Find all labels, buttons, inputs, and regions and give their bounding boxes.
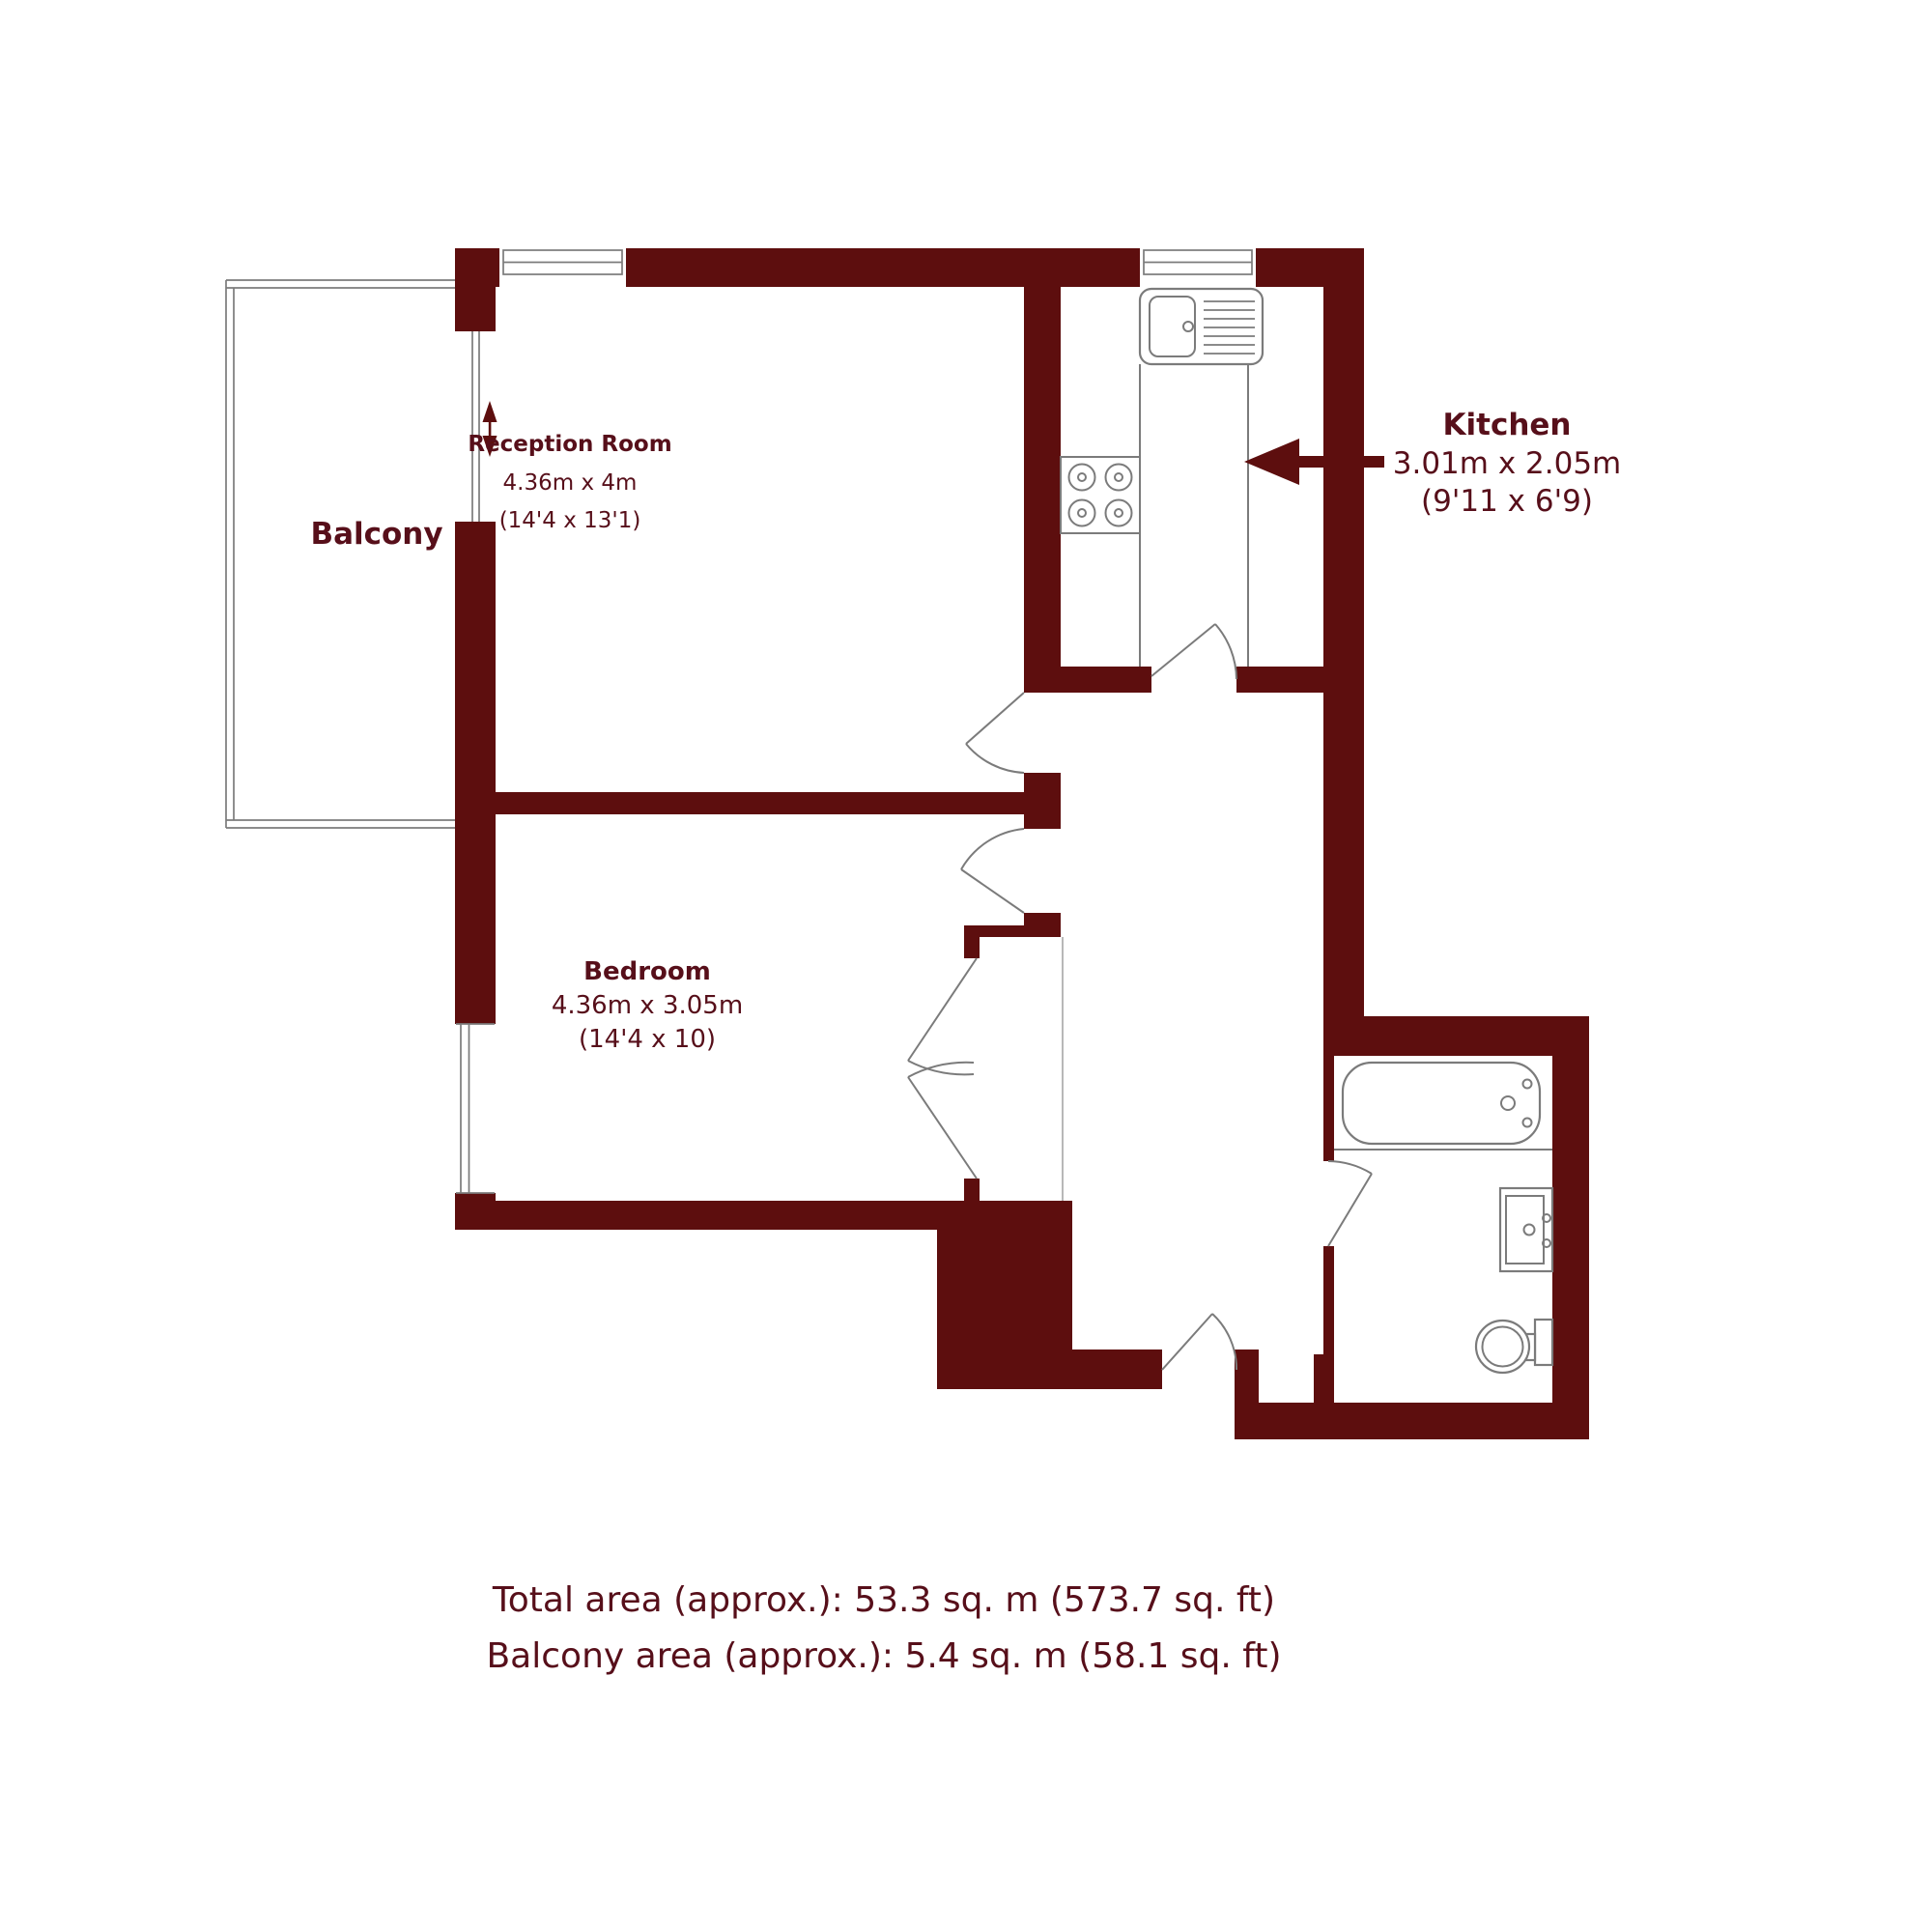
top-wall-mid xyxy=(626,248,1140,287)
kitchen-size-imperial: (9'11 x 6'9) xyxy=(1421,484,1593,519)
reception-door xyxy=(966,693,1024,773)
kitchen-counter xyxy=(1140,364,1248,667)
reception-window xyxy=(503,250,622,274)
closet-doors xyxy=(908,937,1063,1201)
balcony-label: Balcony xyxy=(310,517,442,552)
bedroom-label: Bedroom xyxy=(583,957,711,986)
closet-top-wall xyxy=(971,925,1061,937)
kitchen-label: Kitchen xyxy=(1442,408,1571,442)
walls xyxy=(455,248,1589,1439)
bathroom-door xyxy=(1328,1161,1372,1246)
hall-bottom-wall xyxy=(1072,1350,1162,1389)
bathroom-right-wall xyxy=(1552,1016,1589,1439)
entry-post xyxy=(1235,1350,1259,1403)
closet-jamb-bottom xyxy=(964,1179,980,1201)
kitchen-sink xyxy=(1140,289,1263,364)
vanity-sink xyxy=(1500,1188,1552,1271)
bedroom-door xyxy=(961,829,1024,913)
reception-label: Reception Room xyxy=(468,432,671,457)
bedroom-window xyxy=(456,1024,495,1193)
balcony-area-text: Balcony area (approx.): 5.4 sq. m (58.1 … xyxy=(486,1636,1281,1676)
entry-jamb-strip xyxy=(1314,1354,1328,1403)
kitchen-bottom-wall-left xyxy=(1024,667,1151,693)
bathroom-bottom-wall xyxy=(1235,1403,1589,1439)
central-wall-lower xyxy=(1024,773,1061,829)
balcony-outline xyxy=(226,280,455,828)
entry-door xyxy=(1162,1314,1236,1370)
floorplan-drawing: Balcony Reception Room 4.36m x 4m (14'4 … xyxy=(0,0,1932,1932)
total-area-text: Total area (approx.): 53.3 sq. m (573.7 … xyxy=(492,1580,1275,1620)
right-wall xyxy=(1323,248,1364,1056)
corner-post xyxy=(455,287,496,331)
reception-size-imperial: (14'4 x 13'1) xyxy=(499,508,641,533)
bathtub xyxy=(1334,1063,1552,1150)
bedroom-size-metric: 4.36m x 3.05m xyxy=(552,991,743,1020)
reception-size-metric: 4.36m x 4m xyxy=(503,470,638,496)
top-wall-left xyxy=(455,248,499,287)
kitchen-size-metric: 3.01m x 2.05m xyxy=(1393,446,1622,481)
bathroom-fixtures xyxy=(1334,1063,1552,1373)
bedroom-size-imperial: (14'4 x 10) xyxy=(579,1025,716,1054)
balcony-sliding-door xyxy=(472,331,479,522)
toilet xyxy=(1476,1320,1552,1373)
hall-corner-block xyxy=(937,1230,1072,1389)
bedroom-bottom-wall xyxy=(455,1201,1072,1230)
closet-jamb-top xyxy=(964,925,980,958)
bathroom-left-wall-upper xyxy=(1323,1056,1334,1161)
kitchen-fixtures xyxy=(1061,289,1263,667)
partition-reception-bedroom xyxy=(455,792,1061,814)
central-wall-kitchen xyxy=(1024,287,1061,667)
kitchen-hob xyxy=(1061,457,1140,533)
left-wall-upper xyxy=(455,522,496,1024)
kitchen-door xyxy=(1151,624,1236,679)
kitchen-window xyxy=(1144,250,1252,274)
floorplan-page: Balcony Reception Room 4.36m x 4m (14'4 … xyxy=(0,0,1932,1932)
